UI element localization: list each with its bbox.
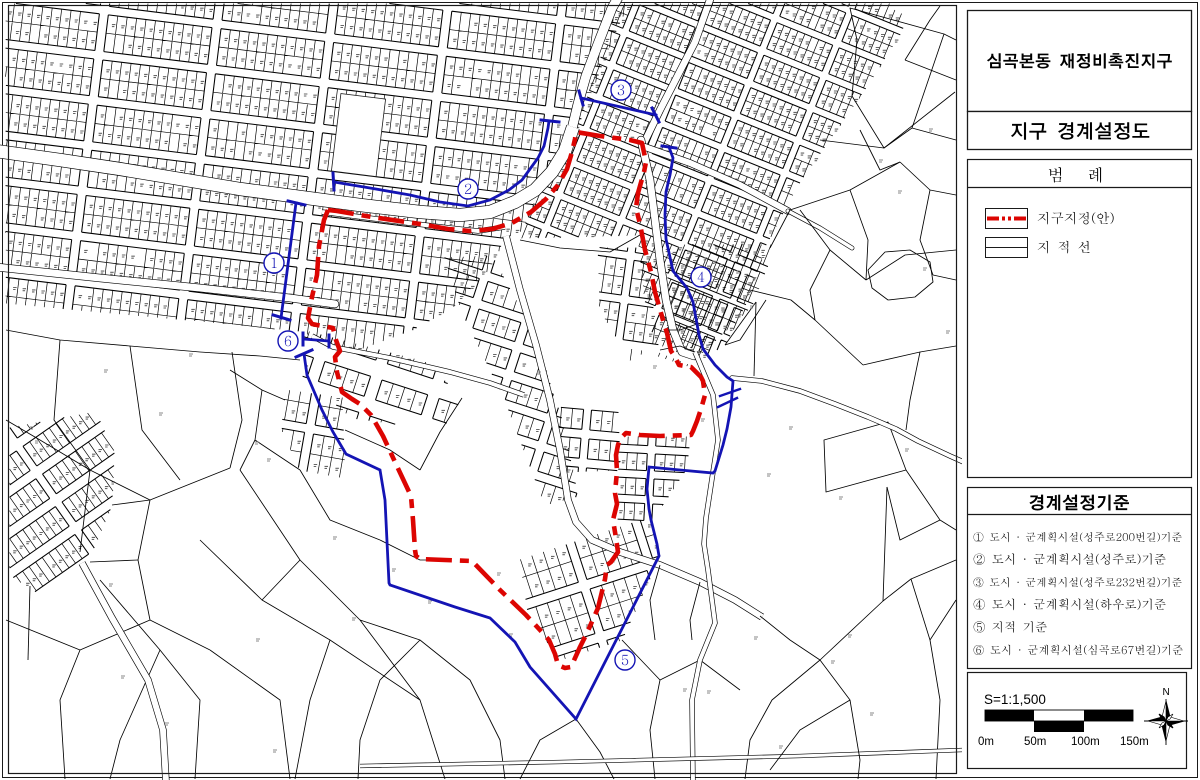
svg-text:0m: 0m (978, 736, 994, 748)
svg-text:100m: 100m (1071, 736, 1100, 748)
svg-text:S=1:1,500: S=1:1,500 (984, 692, 1046, 707)
svg-text:N: N (1163, 687, 1170, 698)
svg-text:50m: 50m (1024, 736, 1046, 748)
svg-text:150m: 150m (1120, 736, 1149, 748)
